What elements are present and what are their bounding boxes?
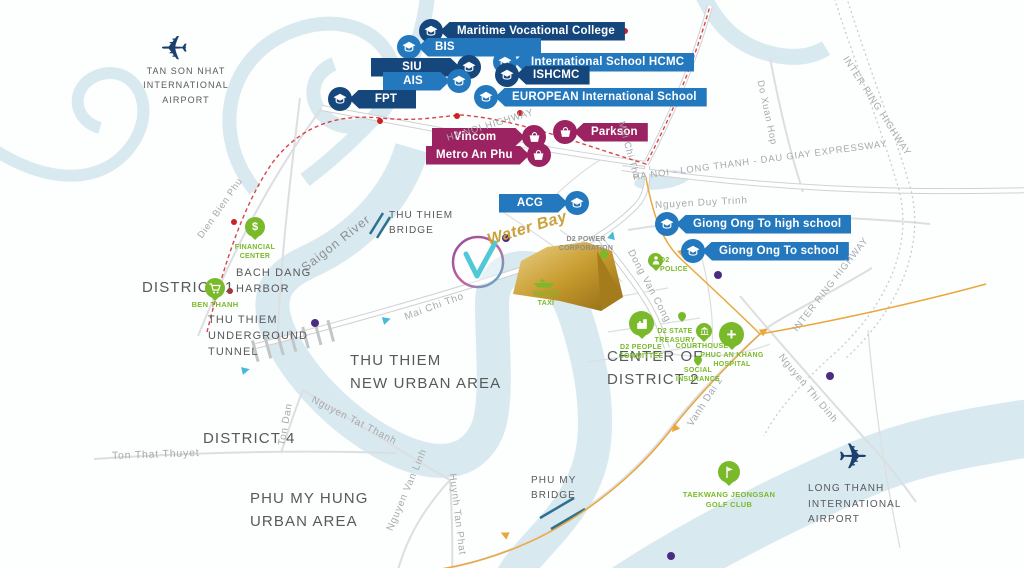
cart-icon (205, 278, 225, 298)
graduation-cap-icon (328, 87, 352, 111)
landmark-giong-ong-to-high-school: Giong Ong To high school (655, 212, 851, 236)
poi-financial-center: FINANCIAL CENTER (225, 243, 285, 262)
landmark-label: Giong Ong To high school (676, 215, 851, 234)
area-bach-dang-harbor: BACH DANG HARBOR (236, 266, 311, 298)
landmark-label: ACG (499, 194, 568, 213)
plane-icon: ✈ (838, 440, 868, 476)
poi-water-taxi: WATER TAXI (526, 290, 566, 309)
landmark-european-international-school: EUROPEAN International School (474, 85, 707, 109)
landmark-label: FPT (349, 90, 416, 109)
graduation-cap-icon (495, 63, 519, 87)
golf-flag-icon (718, 461, 740, 483)
area-thu-thiem-tunnel: THU THIEM UNDERGROUND TUNNEL (208, 313, 308, 361)
graduation-cap-icon (447, 69, 471, 93)
basket-icon (553, 120, 577, 144)
landmark-fpt: FPT (328, 87, 416, 111)
landmark-label: Metro An Phu (426, 146, 530, 165)
area-thu-thiem-bridge: THU THIEM BRIDGE (389, 209, 453, 238)
dollar-icon: $ (245, 217, 265, 237)
area-long-thanh-airport: LONG THANH INTERNATIONAL AIRPORT (808, 481, 902, 528)
basket-icon (527, 143, 551, 167)
graduation-cap-icon (655, 212, 679, 236)
plane-icon: ✈ (160, 32, 189, 66)
landmark-label: Giong Ong To school (702, 242, 849, 261)
poi-d2-power-corporation: D2 POWER CORPORATION (556, 235, 616, 253)
area-thu-thiem-new-urban-area: THU THIEM NEW URBAN AREA (350, 349, 501, 396)
landmark-label: ISHCMC (516, 66, 590, 85)
landmark-label: EUROPEAN International School (495, 88, 707, 107)
landmark-acg: ACG (499, 191, 589, 215)
area-phu-my-bridge: PHU MY BRIDGE (531, 474, 577, 503)
courthouse-icon (696, 323, 712, 339)
graduation-cap-icon (565, 191, 589, 215)
graduation-cap-icon (474, 85, 498, 109)
poi-ben-thanh: BEN THANH (183, 300, 247, 310)
poi-social-insurance: SOCIAL INSURANCE (673, 366, 723, 385)
location-map: Water Bay Maritime Vocational College BI… (0, 0, 1024, 568)
landmark-label: Parkson (574, 123, 648, 142)
area-phu-my-hung: PHU MY HUNG URBAN AREA (250, 487, 369, 534)
landmark-giong-ong-to-school: Giong Ong To school (681, 239, 849, 263)
poi-d2-police: D2 POLICE (660, 256, 694, 275)
poi-taekwang-jeongsan-golf-club: TAEKWANG JEONGSAN GOLF CLUB (681, 490, 777, 510)
poi-pin (678, 312, 686, 320)
landmark-parkson: Parkson (553, 120, 648, 144)
area-tan-son-nhat-airport: TAN SON NHAT INTERNATIONAL AIRPORT (128, 64, 244, 107)
poi-pin (694, 356, 702, 364)
plus-icon: + (719, 322, 744, 347)
landmark-metro-an-phu: Metro An Phu (426, 143, 551, 167)
landmark-ishcmc: ISHCMC (495, 63, 590, 87)
